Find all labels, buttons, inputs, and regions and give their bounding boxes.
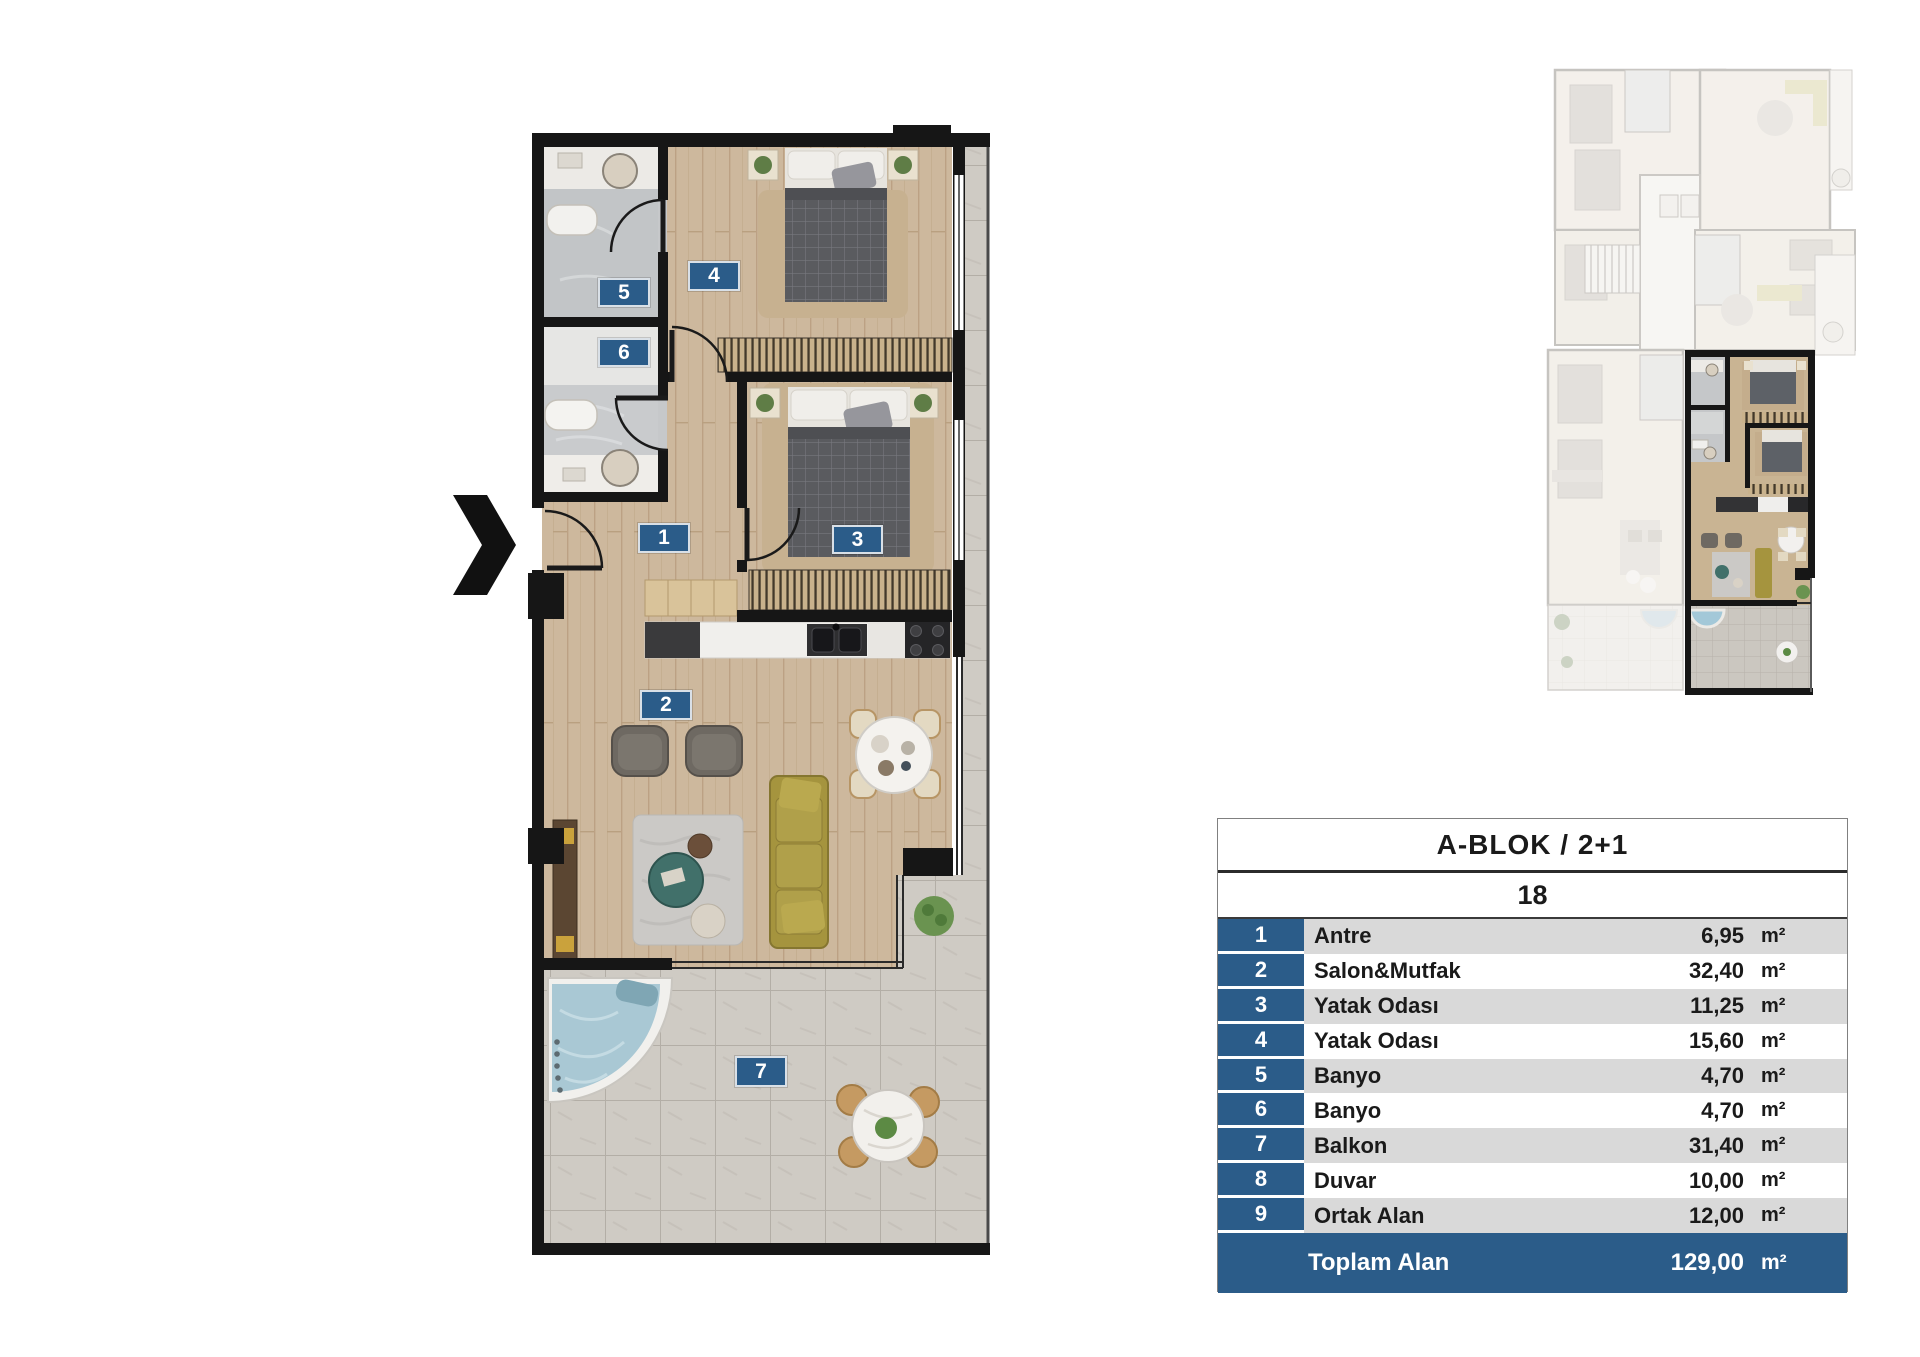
area-unit: m² — [1761, 1169, 1847, 1192]
area-unit: m² — [1761, 995, 1847, 1018]
table-row: 6 Banyo4,70m² — [1218, 1093, 1847, 1128]
bed — [785, 148, 887, 302]
room-badge-2: 2 — [640, 690, 692, 720]
unit-number: 18 — [1218, 873, 1847, 919]
room-badge-5: 5 — [598, 278, 650, 307]
total-unit: m² — [1761, 1251, 1847, 1275]
row-number: 8 — [1218, 1163, 1304, 1198]
row-number: 3 — [1218, 989, 1304, 1024]
floor-plan-page: { "floor_plan": { "entry_arrow": "right-… — [0, 0, 1920, 1357]
main-floor-plan — [453, 125, 990, 1255]
room-badge-4: 4 — [688, 261, 740, 291]
row-number: 5 — [1218, 1059, 1304, 1094]
entry-arrow-icon — [453, 495, 516, 595]
table-row: 1 Antre6,95m² — [1218, 919, 1847, 954]
table-row: 9 Ortak Alan12,00m² — [1218, 1198, 1847, 1233]
room-area: 31,40 — [1644, 1133, 1744, 1159]
wardrobe — [749, 570, 950, 610]
sofa — [770, 776, 828, 948]
room-label: Balkon — [1304, 1133, 1644, 1159]
row-number: 1 — [1218, 919, 1304, 954]
room-area: 4,70 — [1644, 1063, 1744, 1089]
room-area: 10,00 — [1644, 1168, 1744, 1194]
table-row: 5 Banyo4,70m² — [1218, 1059, 1847, 1094]
armchair — [686, 726, 742, 776]
area-unit: m² — [1761, 1099, 1847, 1122]
area-unit: m² — [1761, 1065, 1847, 1088]
row-number: 7 — [1218, 1128, 1304, 1163]
table-row: 3 Yatak Odası11,25m² — [1218, 989, 1847, 1024]
room-area: 32,40 — [1644, 958, 1744, 984]
room-label: Antre — [1304, 923, 1644, 949]
room-area: 15,60 — [1644, 1028, 1744, 1054]
room-label: Salon&Mutfak — [1304, 958, 1644, 984]
room-area: 4,70 — [1644, 1098, 1744, 1124]
room-badge-3: 3 — [832, 525, 883, 554]
table-title: A-BLOK / 2+1 — [1218, 819, 1847, 873]
row-number: 6 — [1218, 1093, 1304, 1128]
dining-set — [850, 710, 940, 798]
table-row: 2 Salon&Mutfak32,40m² — [1218, 954, 1847, 989]
plant — [914, 896, 954, 936]
bistro-set — [837, 1085, 939, 1167]
area-unit: m² — [1761, 960, 1847, 983]
total-value: 129,00 — [1634, 1249, 1744, 1277]
mini-floor-plan — [1548, 70, 1855, 695]
room-label: Banyo — [1304, 1098, 1644, 1124]
row-number: 4 — [1218, 1024, 1304, 1059]
room-badge-1: 1 — [638, 523, 690, 553]
room-label: Duvar — [1304, 1168, 1644, 1194]
unit-area-table: A-BLOK / 2+1 18 1 Antre6,95m² 2 Salon&Mu… — [1217, 818, 1848, 1292]
total-label: Toplam Alan — [1218, 1249, 1634, 1277]
wardrobe — [718, 338, 952, 372]
room-area: 12,00 — [1644, 1203, 1744, 1229]
mini-highlighted-unit — [1685, 350, 1815, 695]
area-unit: m² — [1761, 1134, 1847, 1157]
area-unit: m² — [1761, 1030, 1847, 1053]
row-number: 2 — [1218, 954, 1304, 989]
table-rows: 1 Antre6,95m² 2 Salon&Mutfak32,40m² 3 Ya… — [1218, 919, 1847, 1233]
armchair — [612, 726, 668, 776]
room-label: Banyo — [1304, 1063, 1644, 1089]
room-badge-6: 6 — [598, 338, 650, 367]
table-row: 8 Duvar10,00m² — [1218, 1163, 1847, 1198]
area-unit: m² — [1761, 1204, 1847, 1227]
room-area: 11,25 — [1644, 993, 1744, 1019]
table-total-row: Toplam Alan 129,00 m² — [1218, 1233, 1847, 1293]
row-number: 9 — [1218, 1198, 1304, 1233]
room-badge-7: 7 — [735, 1056, 787, 1087]
area-unit: m² — [1761, 925, 1847, 948]
side-bowl — [688, 834, 712, 858]
side-table — [691, 904, 725, 938]
room-label: Yatak Odası — [1304, 1028, 1644, 1054]
room-area: 6,95 — [1644, 923, 1744, 949]
table-row: 7 Balkon31,40m² — [1218, 1128, 1847, 1163]
room-label: Yatak Odası — [1304, 993, 1644, 1019]
bedroom-3 — [749, 383, 950, 610]
table-row: 4 Yatak Odası15,60m² — [1218, 1024, 1847, 1059]
room-label: Ortak Alan — [1304, 1203, 1644, 1229]
